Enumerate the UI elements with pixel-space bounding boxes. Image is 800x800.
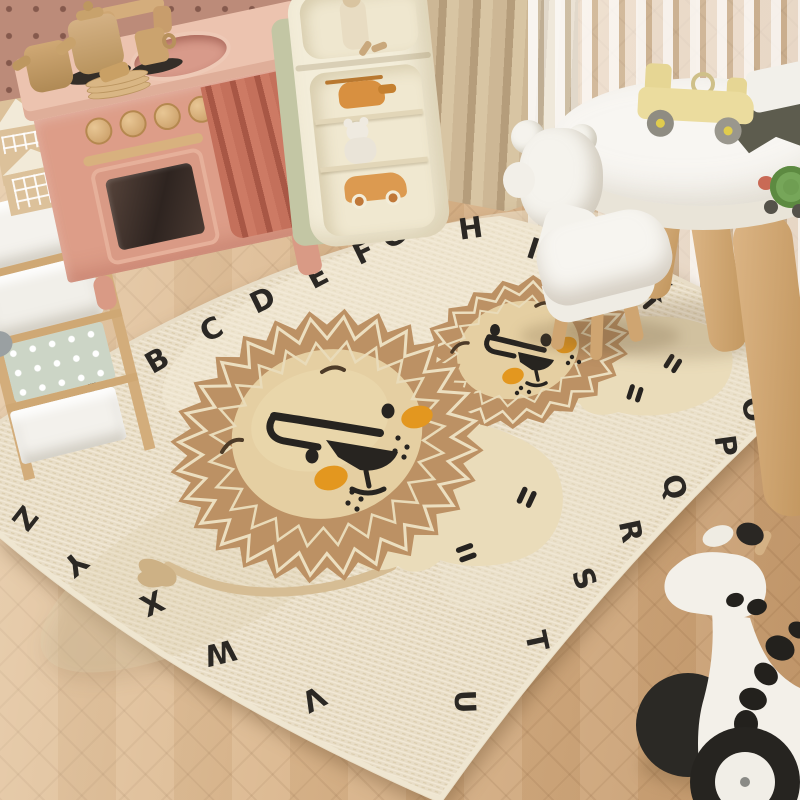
oven-window: [105, 162, 206, 251]
giraffe-ear: [700, 521, 737, 551]
snail-wheel: [764, 200, 778, 214]
snail-wheel: [792, 204, 800, 218]
playroom-photo: B A B C D E F G H I K N O P Q R S T U V …: [0, 0, 800, 800]
car-wheel-hub: [723, 126, 732, 135]
chair-muzzle: [503, 162, 535, 198]
rug-letter: U: [448, 689, 483, 714]
rug-letter: P: [708, 433, 745, 459]
giraffe-wheel-pin: [740, 777, 750, 787]
kids-animal-chair: [505, 120, 695, 360]
giraffe-push-toy: [600, 500, 800, 800]
toy-helicopter: [337, 79, 385, 110]
kitchen-leg: [92, 274, 119, 311]
toy-shelf: [279, 0, 466, 260]
car-wheel: [714, 117, 742, 145]
